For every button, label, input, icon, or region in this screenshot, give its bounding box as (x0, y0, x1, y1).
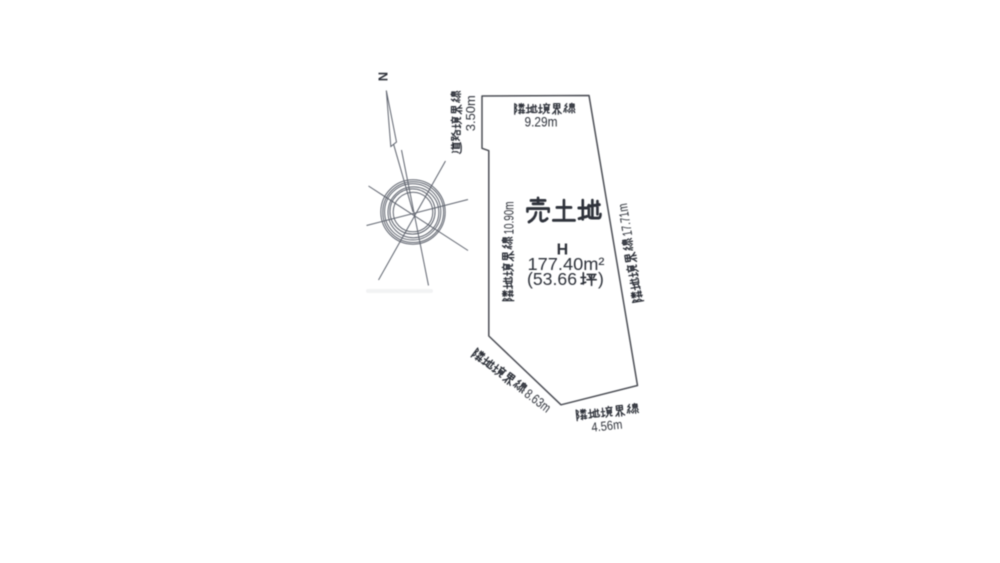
svg-text:4.56m: 4.56m (591, 417, 623, 435)
svg-text:17.71m: 17.71m (615, 202, 635, 237)
svg-text:8.63m: 8.63m (522, 386, 554, 415)
svg-text:3.50m: 3.50m (463, 95, 478, 131)
svg-text:(53.66: (53.66 (527, 269, 577, 289)
svg-text:): ) (598, 269, 604, 289)
svg-text:N: N (376, 72, 391, 81)
svg-text:9.29m: 9.29m (525, 114, 558, 130)
svg-text:10.90m: 10.90m (501, 202, 516, 235)
